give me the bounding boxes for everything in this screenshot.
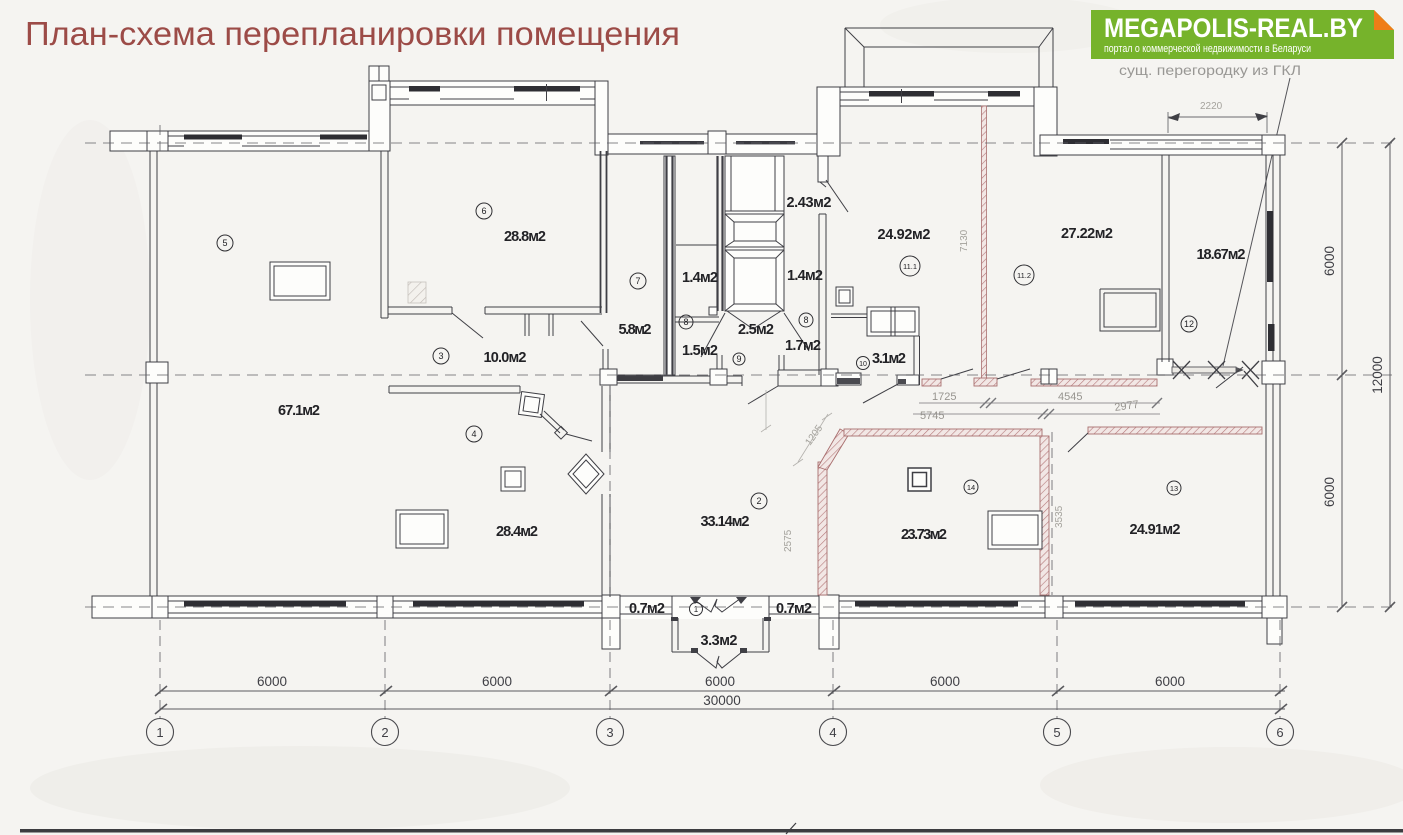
svg-text:27.22м2: 27.22м2: [1061, 226, 1113, 242]
svg-text:28.8м2: 28.8м2: [504, 229, 546, 245]
svg-text:8: 8: [803, 315, 808, 325]
svg-text:33.14м2: 33.14м2: [701, 514, 750, 530]
svg-text:12000: 12000: [1370, 356, 1385, 394]
svg-text:67.1м2: 67.1м2: [278, 403, 320, 419]
svg-text:6: 6: [1276, 725, 1283, 740]
svg-text:30000: 30000: [703, 693, 741, 708]
svg-text:0.7м2: 0.7м2: [629, 601, 665, 617]
svg-text:18.67м2: 18.67м2: [1197, 247, 1246, 263]
svg-text:6: 6: [481, 206, 486, 216]
svg-text:6000: 6000: [705, 674, 735, 689]
svg-text:28.4м2: 28.4м2: [496, 524, 538, 540]
svg-text:4545: 4545: [1058, 391, 1082, 403]
svg-text:2575: 2575: [783, 529, 794, 552]
svg-text:24.91м2: 24.91м2: [1130, 522, 1181, 538]
svg-text:14: 14: [967, 483, 975, 492]
svg-text:4: 4: [829, 725, 836, 740]
svg-text:6000: 6000: [482, 674, 512, 689]
svg-text:5.8м2: 5.8м2: [619, 322, 652, 338]
svg-text:3: 3: [438, 351, 443, 361]
svg-text:8: 8: [683, 317, 688, 327]
svg-text:10: 10: [859, 361, 867, 368]
svg-text:План-схема перепланировки поме: План-схема перепланировки помещения: [25, 15, 680, 52]
svg-text:5: 5: [222, 238, 227, 248]
svg-text:2220: 2220: [1200, 101, 1223, 112]
svg-text:5: 5: [1053, 725, 1060, 740]
svg-text:2.43м2: 2.43м2: [787, 195, 832, 211]
svg-text:1.4м2: 1.4м2: [787, 268, 823, 284]
svg-text:24.92м2: 24.92м2: [878, 227, 931, 243]
svg-text:23.73м2: 23.73м2: [901, 527, 947, 543]
svg-text:6000: 6000: [257, 674, 287, 689]
svg-text:6000: 6000: [930, 674, 960, 689]
svg-text:1.4м2: 1.4м2: [682, 270, 718, 286]
svg-text:2: 2: [756, 496, 761, 506]
svg-text:1.5м2: 1.5м2: [682, 343, 718, 359]
svg-text:5745: 5745: [920, 410, 944, 422]
svg-text:7: 7: [635, 276, 640, 286]
svg-text:3.3м2: 3.3м2: [701, 633, 738, 649]
svg-text:13: 13: [1170, 484, 1178, 493]
svg-text:6000: 6000: [1322, 477, 1337, 507]
svg-text:портал о коммерческой недвижим: портал о коммерческой недвижимости в Бел…: [1104, 43, 1311, 55]
svg-text:1: 1: [694, 605, 699, 614]
svg-text:1: 1: [156, 725, 163, 740]
svg-text:4: 4: [471, 429, 476, 439]
svg-text:9: 9: [736, 354, 741, 364]
svg-text:1725: 1725: [932, 391, 956, 403]
svg-text:12: 12: [1184, 319, 1194, 329]
svg-text:10.0м2: 10.0м2: [484, 350, 527, 366]
svg-text:2.5м2: 2.5м2: [738, 322, 774, 338]
svg-text:0.7м2: 0.7м2: [776, 601, 812, 617]
svg-text:MEGAPOLIS-REAL.BY: MEGAPOLIS-REAL.BY: [1104, 13, 1363, 43]
svg-text:7130: 7130: [959, 229, 970, 252]
svg-text:3535: 3535: [1054, 505, 1065, 528]
svg-text:сущ. перегородку из ГКЛ: сущ. перегородку из ГКЛ: [1119, 62, 1301, 78]
svg-text:3: 3: [606, 725, 613, 740]
svg-text:11.2: 11.2: [1017, 271, 1031, 280]
svg-text:11.1: 11.1: [903, 262, 917, 271]
svg-text:6000: 6000: [1322, 246, 1337, 276]
svg-text:3.1м2: 3.1м2: [872, 351, 906, 367]
svg-text:6000: 6000: [1155, 674, 1185, 689]
svg-text:1.7м2: 1.7м2: [785, 338, 821, 354]
svg-text:2: 2: [381, 725, 388, 740]
